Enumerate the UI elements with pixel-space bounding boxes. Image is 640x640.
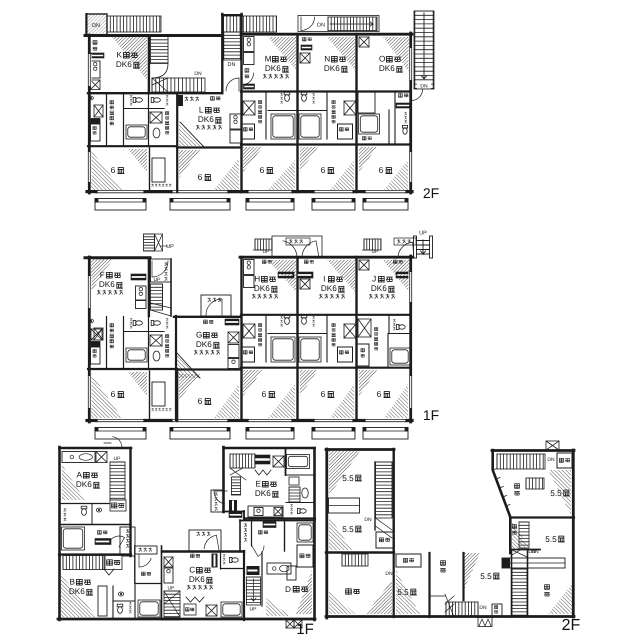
- svg-text:M: M: [265, 55, 272, 64]
- svg-text:UP: UP: [166, 244, 174, 250]
- svg-text:DK6: DK6: [76, 480, 92, 489]
- svg-text:5.5: 5.5: [545, 535, 557, 544]
- svg-text:N: N: [324, 55, 330, 64]
- svg-text:2F: 2F: [562, 617, 581, 634]
- svg-text:G: G: [196, 331, 202, 340]
- svg-text:DN: DN: [92, 23, 100, 29]
- svg-text:DN: DN: [228, 62, 236, 68]
- svg-text:O: O: [379, 55, 385, 64]
- svg-text:5.5: 5.5: [342, 525, 354, 534]
- svg-text:UP: UP: [263, 249, 271, 255]
- svg-text:DN: DN: [194, 71, 202, 77]
- svg-text:A: A: [76, 471, 82, 480]
- svg-text:6: 6: [321, 389, 326, 399]
- svg-text:DK6: DK6: [198, 115, 214, 124]
- svg-text:E: E: [255, 480, 261, 489]
- svg-text:B: B: [69, 578, 75, 587]
- svg-text:I: I: [323, 275, 325, 284]
- svg-text:6: 6: [379, 165, 384, 175]
- svg-text:UP: UP: [419, 231, 427, 237]
- svg-text:DK6: DK6: [189, 575, 205, 584]
- svg-text:DK6: DK6: [379, 64, 395, 73]
- svg-text:6: 6: [321, 165, 326, 175]
- svg-text:DK6: DK6: [116, 60, 132, 69]
- svg-text:H: H: [254, 275, 260, 284]
- svg-text:DK6: DK6: [196, 340, 212, 349]
- svg-text:UP: UP: [250, 607, 258, 613]
- svg-text:DN: DN: [385, 571, 393, 577]
- svg-text:K: K: [116, 51, 122, 60]
- svg-text:6: 6: [260, 165, 265, 175]
- svg-text:DK6: DK6: [265, 64, 281, 73]
- svg-text:6: 6: [198, 172, 203, 182]
- svg-text:UP: UP: [372, 249, 380, 255]
- svg-text:5.5: 5.5: [480, 572, 492, 581]
- svg-text:UP: UP: [154, 277, 162, 283]
- svg-text:DN: DN: [364, 517, 372, 523]
- svg-text:DK6: DK6: [254, 284, 270, 293]
- svg-text:6: 6: [111, 165, 116, 175]
- svg-text:DK6: DK6: [99, 280, 115, 289]
- svg-text:6: 6: [377, 389, 382, 399]
- svg-text:6: 6: [262, 389, 267, 399]
- svg-text:L: L: [199, 106, 204, 115]
- svg-text:1F: 1F: [296, 621, 314, 638]
- svg-text:UP: UP: [168, 586, 176, 592]
- svg-text:J: J: [372, 275, 376, 284]
- svg-text:DK6: DK6: [324, 64, 340, 73]
- svg-text:C: C: [189, 566, 195, 575]
- svg-text:DN: DN: [479, 605, 487, 611]
- svg-text:D: D: [285, 585, 291, 594]
- svg-text:5.5: 5.5: [342, 474, 354, 483]
- svg-text:DK6: DK6: [255, 489, 271, 498]
- svg-text:2F: 2F: [423, 185, 439, 201]
- svg-text:6: 6: [198, 396, 203, 406]
- svg-text:1F: 1F: [423, 407, 439, 423]
- svg-text:UP: UP: [114, 456, 122, 462]
- svg-text:DN: DN: [547, 457, 555, 463]
- svg-text:DK6: DK6: [321, 284, 337, 293]
- svg-text:6: 6: [111, 389, 116, 399]
- svg-text:DK6: DK6: [371, 284, 387, 293]
- svg-text:DN: DN: [317, 23, 325, 29]
- svg-text:DN: DN: [420, 84, 428, 90]
